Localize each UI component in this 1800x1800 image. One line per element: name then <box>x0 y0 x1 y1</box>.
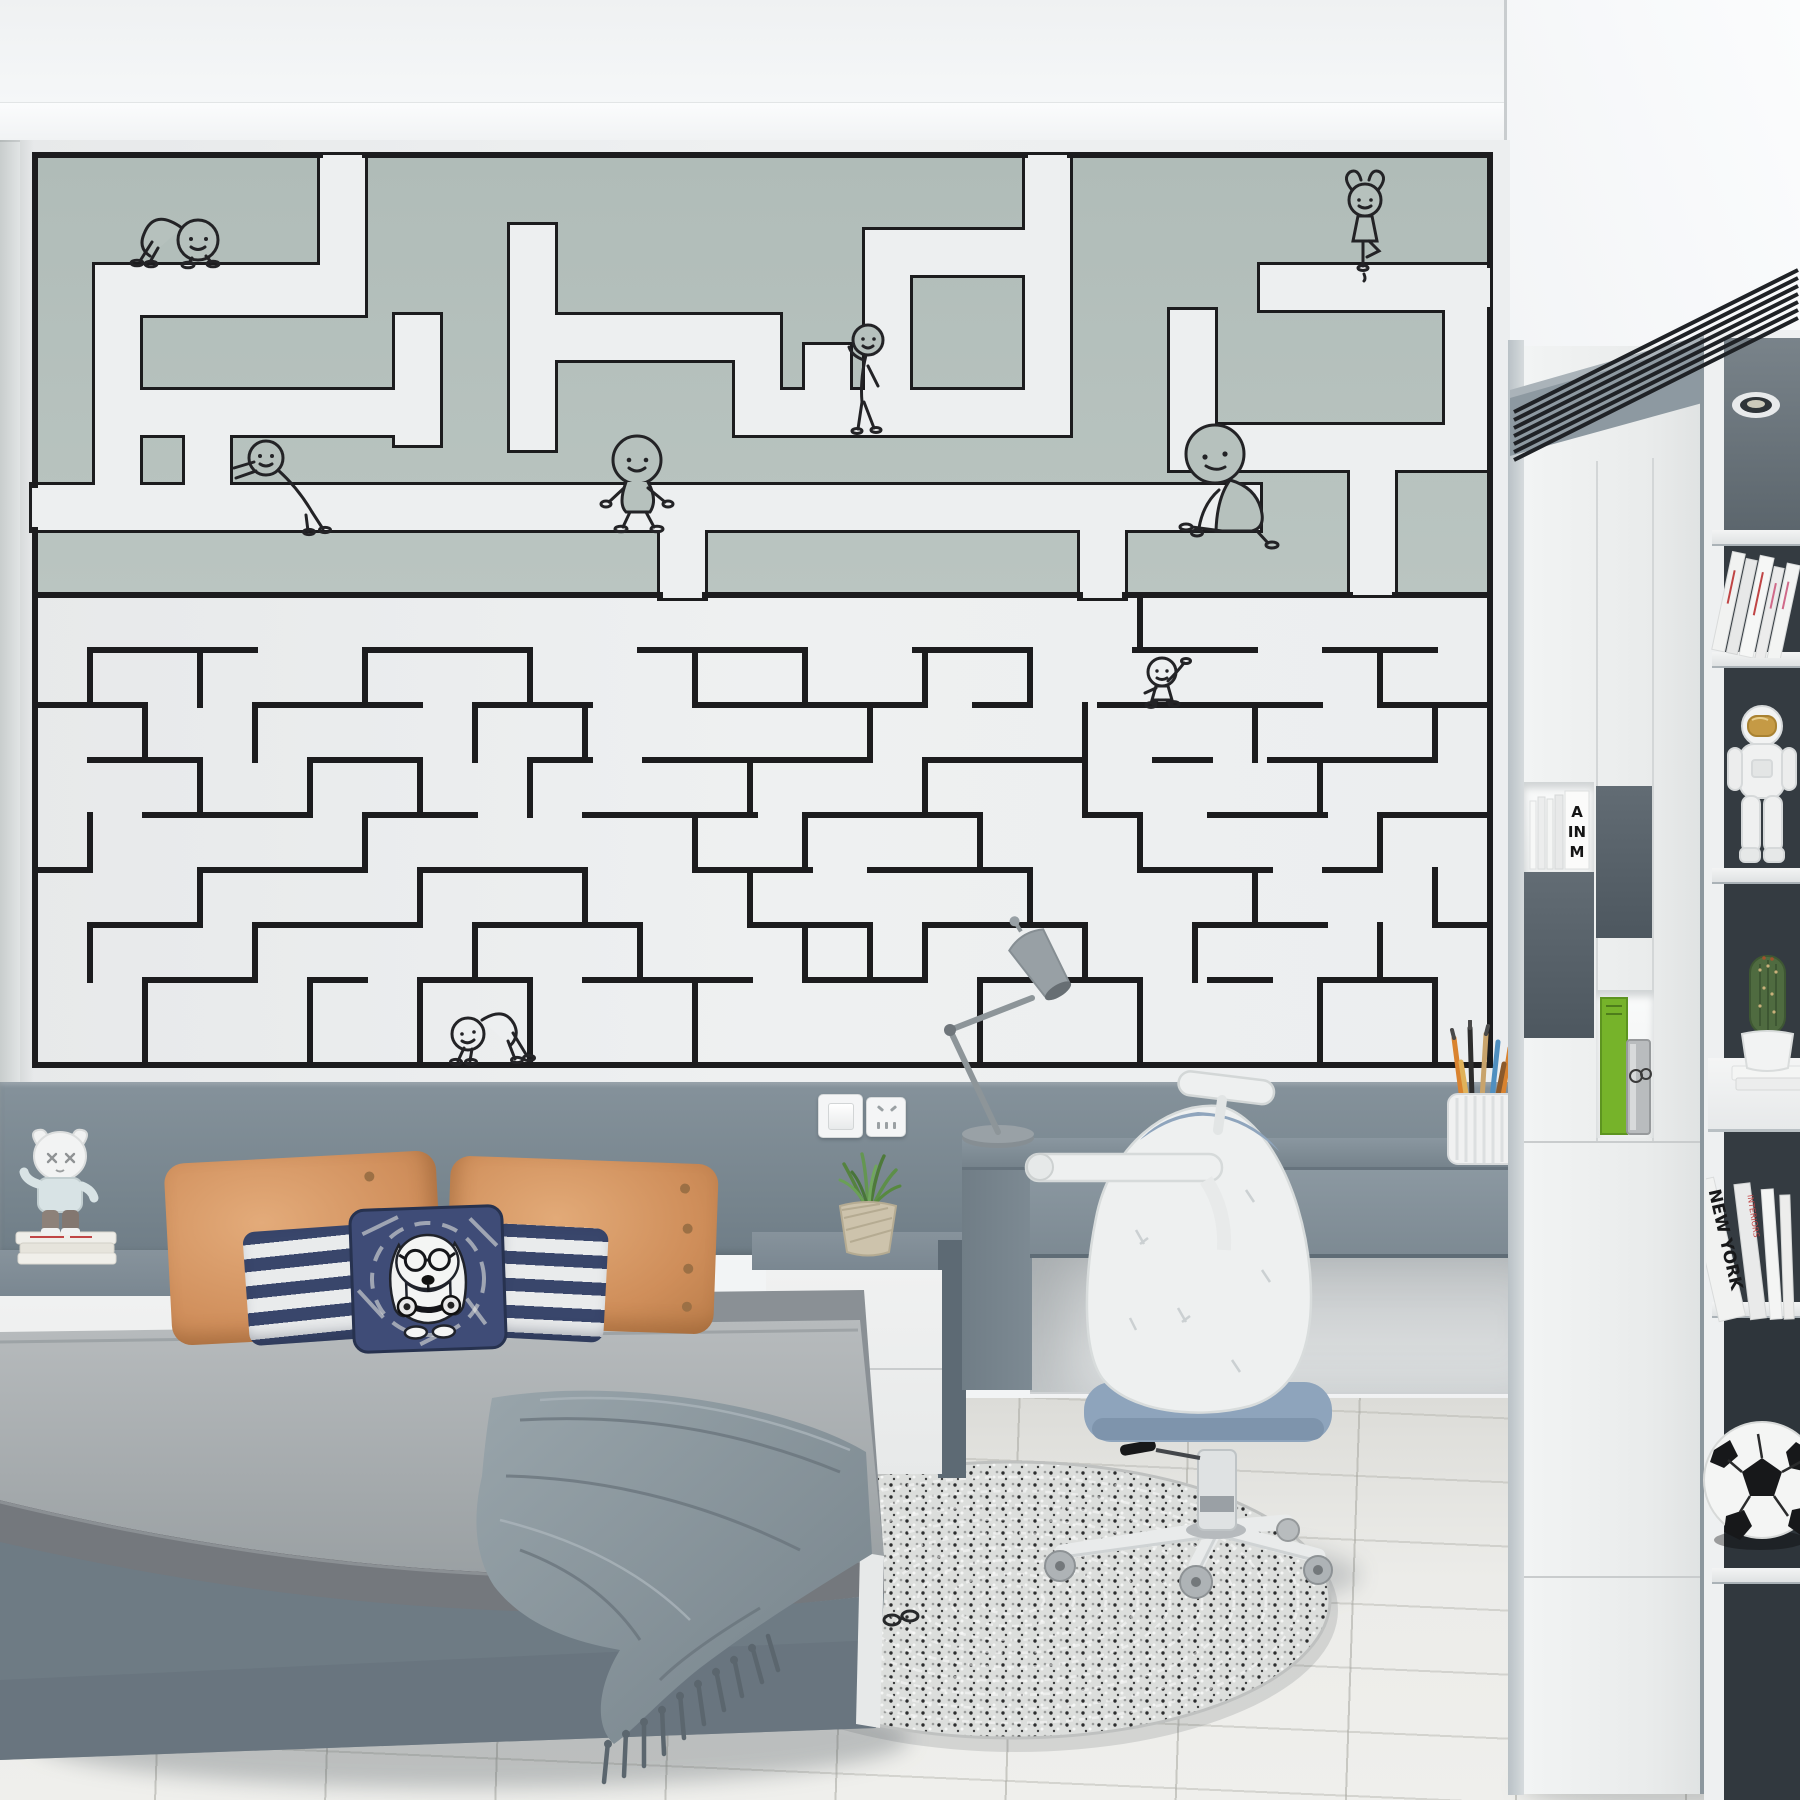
maze-mural-wall <box>0 140 1510 1088</box>
cubby-dark-upper <box>1596 786 1652 938</box>
shelf-books-top <box>1706 540 1800 658</box>
cubby-dark-lower <box>1524 872 1594 1038</box>
floor-glasses-toy <box>884 1611 918 1625</box>
throw-blanket <box>0 1080 1000 1800</box>
book-letter-m: M <box>1570 843 1585 861</box>
soccer-ball <box>1700 1398 1800 1558</box>
shelf-bay-bottom <box>1724 1584 1800 1800</box>
cactus-pot <box>1730 948 1800 1098</box>
astronaut-figurine <box>1722 700 1800 872</box>
crown-molding <box>0 102 1510 142</box>
shelf-books-newyork: NEW YORK INTERIORS <box>1706 1155 1800 1330</box>
wardrobe-side-edge <box>1508 340 1524 1795</box>
air-vent-icon <box>1506 250 1800 480</box>
cubby-book-spines: A IN M <box>1526 785 1592 871</box>
wall-shading <box>0 140 34 1085</box>
book-letter-a: A <box>1571 803 1583 821</box>
book-letter-in: IN <box>1568 823 1586 841</box>
ceiling <box>0 0 1510 102</box>
green-book-and-cup <box>1596 992 1654 1138</box>
ergonomic-chair <box>1000 1060 1360 1605</box>
kids-bedroom-scene: A IN M <box>0 0 1800 1800</box>
